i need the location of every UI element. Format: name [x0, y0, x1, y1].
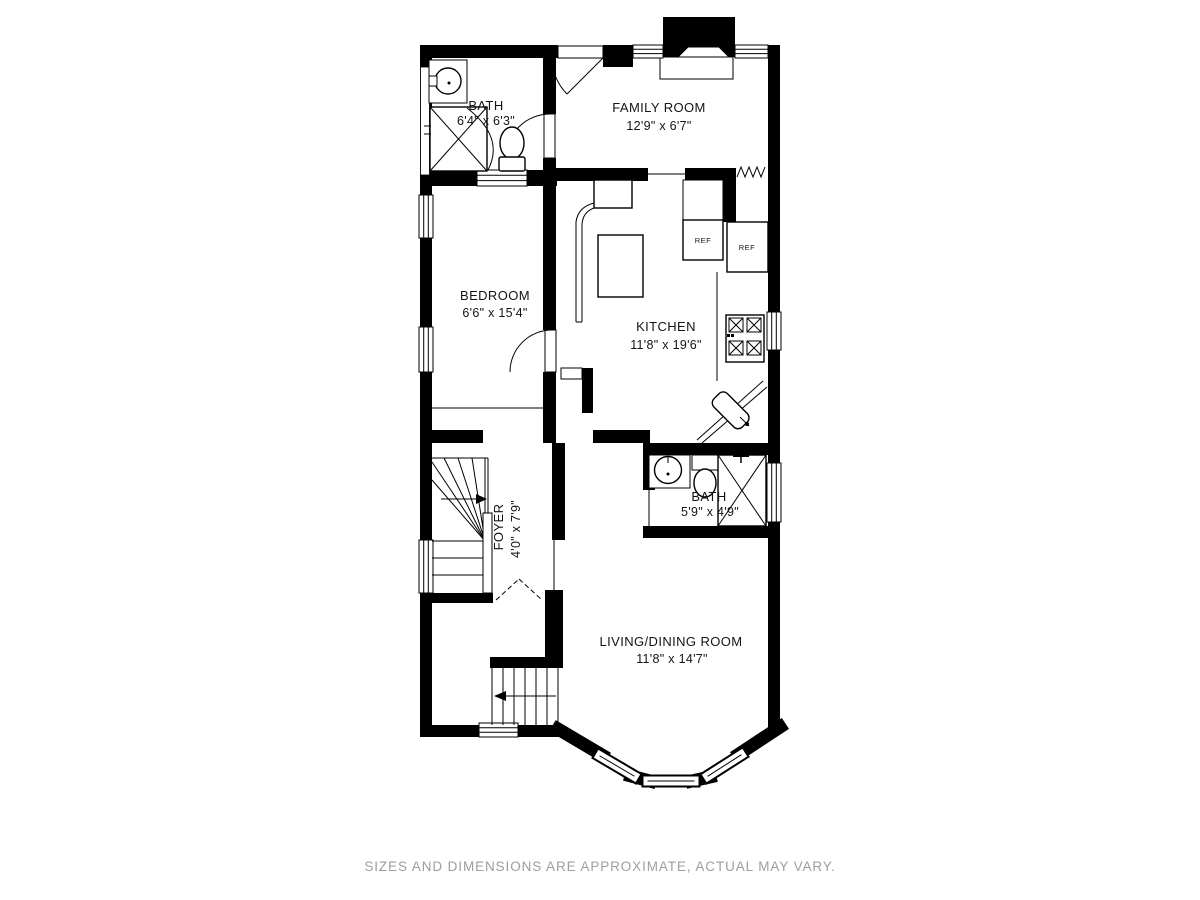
disclaimer-text: SIZES AND DIMENSIONS ARE APPROXIMATE, AC… — [364, 859, 835, 874]
wall-ref-stub — [723, 168, 736, 222]
stair-direction-arrow — [441, 494, 487, 504]
sink-drain — [448, 82, 451, 85]
wall-divider-upper — [543, 45, 556, 114]
foyer-stairs — [432, 458, 492, 593]
living-dining-dims: 11'8" x 14'7" — [636, 652, 708, 666]
wall-band-kitchen-left — [556, 168, 648, 181]
foyer-dims: 4'0" x 7'9" — [509, 500, 523, 558]
bedroom-label: BEDROOM — [460, 288, 530, 303]
straight-treads — [432, 541, 483, 575]
wall-foyer-top — [420, 430, 483, 443]
bay-window-left — [600, 756, 634, 776]
refrigerator-2-label: REF — [739, 243, 756, 252]
family-room-dims: 12'9" x 6'7" — [626, 119, 691, 133]
kitchen-label: KITCHEN — [636, 319, 696, 334]
wall-top-door-stub — [603, 45, 633, 67]
floor-plan-drawing: BATH 6'4" x 6'3" FAMILY ROOM 12'9" x 6'7… — [0, 0, 1200, 900]
wall-top-left — [420, 45, 558, 58]
floor-plan-page: BATH 6'4" x 6'3" FAMILY ROOM 12'9" x 6'7… — [0, 0, 1200, 900]
bay-window — [558, 727, 780, 781]
wall-foyer-bottom — [430, 593, 493, 603]
wall-living-west — [545, 590, 563, 660]
sink-drain — [667, 473, 670, 476]
foyer-label: FOYER — [491, 504, 506, 551]
window-family-top-right — [735, 45, 768, 58]
bedroom-dims: 6'6" x 15'4" — [462, 306, 527, 320]
counter-edge-left — [576, 203, 594, 322]
wall-bath2-top — [643, 443, 780, 455]
wall-divider-bedroom — [543, 186, 556, 330]
bath1-wall-niche — [421, 67, 430, 175]
entry-opening-marks — [496, 579, 542, 600]
window-bottom — [479, 723, 518, 737]
wall-bottom-left — [420, 725, 480, 737]
kitchen-sink — [710, 389, 752, 431]
door-family-room — [552, 46, 603, 94]
wall-foyer-right — [552, 443, 565, 540]
cabinet — [683, 180, 723, 220]
wall-stair-top — [490, 657, 563, 668]
wall-bath2-bottom — [643, 526, 780, 538]
window-bedroom-left-2 — [419, 327, 433, 372]
stove — [726, 315, 764, 362]
window-foyer-left — [419, 540, 433, 593]
wall-corridor-stub — [582, 368, 593, 413]
wall-kitchen-bottom — [593, 430, 650, 443]
window-bedroom-top — [477, 170, 527, 186]
entry-stairs — [492, 668, 558, 725]
window-bath2-right — [767, 463, 781, 522]
stove-controls — [727, 334, 730, 337]
kitchen-dims: 11'8" x 19'6" — [630, 338, 702, 352]
sink-faucet — [429, 76, 437, 86]
kitchen-island — [598, 235, 643, 297]
radiator-icon — [737, 167, 765, 177]
bath1-dims: 6'4" x 6'3" — [457, 114, 515, 128]
bath2-label: BATH — [691, 489, 726, 504]
appliance-top — [594, 180, 632, 208]
wall-right — [768, 45, 780, 727]
burner — [747, 341, 761, 355]
door-kitchen-corridor — [561, 368, 582, 379]
window-bedroom-left-1 — [419, 195, 433, 238]
living-dining-label: LIVING/DINING ROOM — [600, 634, 743, 649]
door-bedroom — [510, 330, 556, 372]
bath2-dims: 5'9" x 4'9" — [681, 505, 739, 519]
kitchen-fixtures — [576, 167, 768, 443]
window-family-top-left — [633, 45, 663, 58]
burner — [747, 318, 761, 332]
bay-window-right — [708, 755, 741, 776]
family-room-label: FAMILY ROOM — [612, 100, 706, 115]
bath1-label: BATH — [468, 98, 503, 113]
fireplace-hearth — [660, 57, 733, 79]
toilet-tank — [692, 455, 718, 470]
window-kitchen-right — [767, 312, 781, 350]
refrigerator-1-label: REF — [695, 236, 712, 245]
burner — [729, 318, 743, 332]
burner — [729, 341, 743, 355]
toilet — [499, 127, 525, 171]
sink-basin — [435, 68, 461, 94]
wall-divider-lower — [543, 372, 556, 443]
